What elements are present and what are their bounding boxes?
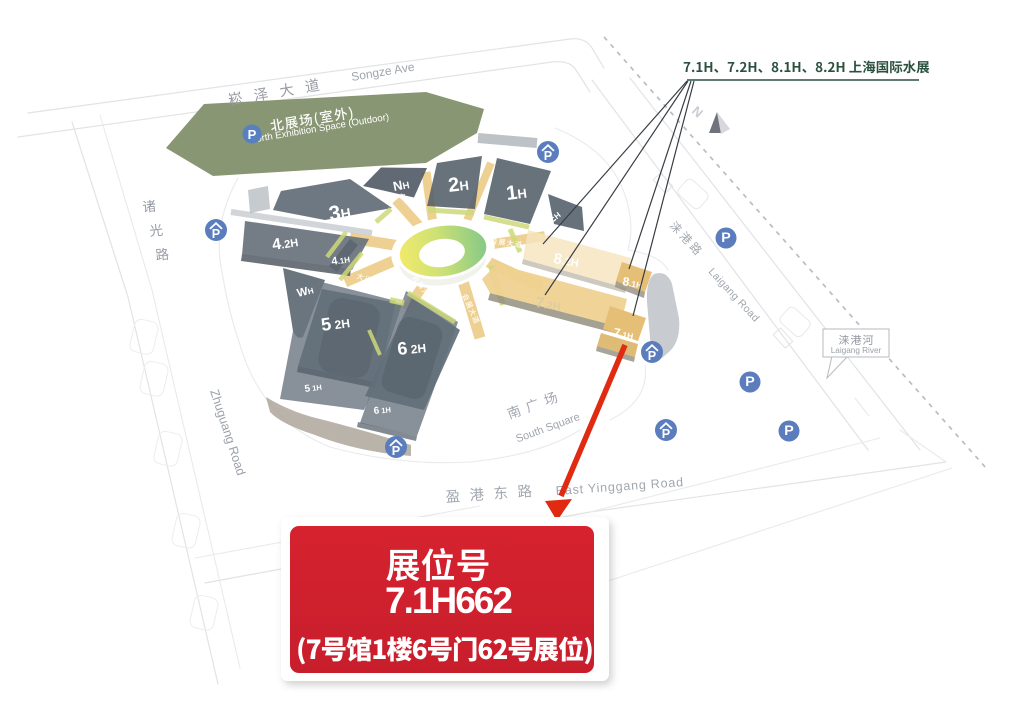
svg-text:Laigang River: Laigang River (831, 346, 882, 355)
svg-text:7.1H662: 7.1H662 (385, 580, 512, 621)
